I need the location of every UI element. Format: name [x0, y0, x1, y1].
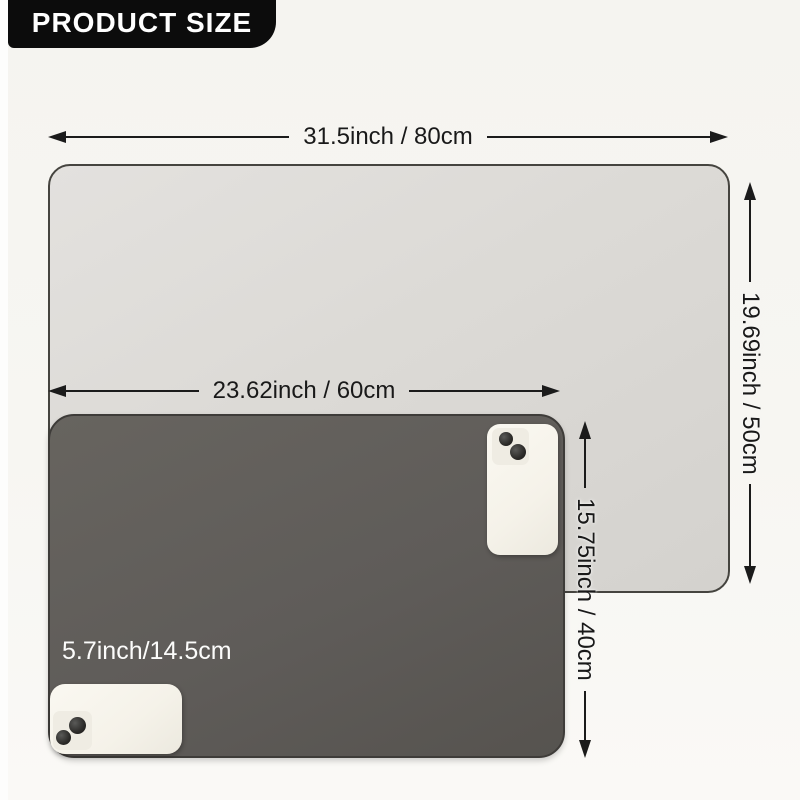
dimension-small-mat-width: 23.62inch / 60cm	[48, 376, 560, 406]
dimension-small-mat-height: 15.75inch / 40cm	[569, 421, 601, 758]
small-mat-height-label: 15.75inch / 40cm	[571, 498, 599, 681]
camera-lens-icon	[56, 730, 71, 745]
phone-landscape	[50, 684, 182, 754]
dimension-line	[584, 691, 586, 740]
arrow-up-icon	[744, 182, 756, 200]
small-mat-width-label: 23.62inch / 60cm	[213, 377, 396, 405]
dimension-line	[749, 200, 751, 282]
product-size-diagram: PRODUCT SIZE 31.5inch / 80cm 23.62inch /…	[0, 0, 800, 800]
arrow-down-icon	[744, 566, 756, 584]
page-edge-strip	[0, 0, 8, 800]
arrow-left-icon	[48, 385, 66, 397]
camera-lens-icon	[499, 432, 513, 446]
dimension-large-mat-width: 31.5inch / 80cm	[48, 122, 728, 152]
phone-size-label: 5.7inch/14.5cm	[62, 637, 232, 666]
camera-lens-icon	[510, 444, 526, 460]
large-mat-width-label: 31.5inch / 80cm	[303, 123, 472, 151]
dimension-line	[66, 136, 289, 138]
large-mat-height-label: 19.69inch / 50cm	[736, 292, 764, 475]
title-badge: PRODUCT SIZE	[8, 0, 276, 48]
dimension-line	[66, 390, 199, 392]
arrow-right-icon	[710, 131, 728, 143]
arrow-down-icon	[579, 740, 591, 758]
dimension-line	[409, 390, 542, 392]
page-title: PRODUCT SIZE	[32, 7, 252, 39]
arrow-left-icon	[48, 131, 66, 143]
phone-portrait	[487, 424, 558, 555]
arrow-up-icon	[579, 421, 591, 439]
dimension-line	[584, 439, 586, 488]
camera-lens-icon	[69, 717, 86, 734]
dimension-line	[487, 136, 710, 138]
dimension-line	[749, 484, 751, 566]
dimension-large-mat-height: 19.69inch / 50cm	[734, 182, 766, 584]
arrow-right-icon	[542, 385, 560, 397]
